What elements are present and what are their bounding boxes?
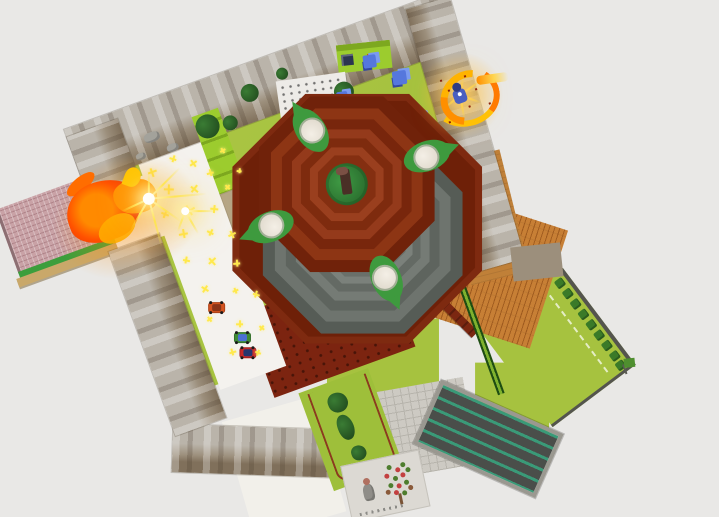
spark-particle: [235, 320, 242, 327]
tree-dot: [385, 489, 391, 495]
castle-wall-stub: [510, 242, 563, 281]
tree-dot: [405, 467, 411, 473]
tree-dot: [396, 483, 402, 489]
fence-bush: [577, 308, 590, 321]
game-viewport[interactable]: [0, 0, 719, 517]
enemy-unit[interactable]: [208, 301, 225, 314]
tree-dot: [400, 462, 406, 468]
tree-dot: [388, 483, 394, 489]
spark-particle: [232, 259, 240, 267]
fence-bush: [569, 298, 582, 311]
tree-dot: [386, 465, 392, 471]
fence-bush: [601, 339, 614, 352]
spark-particle: [182, 256, 190, 264]
blue-crystal-icon: [362, 54, 377, 69]
enemy-unit[interactable]: [234, 331, 251, 344]
card-tick-marks: [359, 504, 405, 516]
fence-bush: [585, 318, 598, 331]
tree-dot: [393, 475, 399, 481]
enemy-wheels: [235, 331, 238, 334]
tree-dot: [408, 485, 414, 491]
tree-dot: [402, 490, 408, 496]
spark-particle: [205, 168, 214, 177]
fence-bush: [562, 287, 575, 300]
spark-particle: [251, 290, 260, 299]
statue: [362, 483, 376, 502]
fence-bush: [554, 277, 567, 290]
navy-crate: [341, 54, 354, 66]
enemy-wheels: [209, 301, 212, 304]
tree-dot: [384, 473, 390, 479]
spark-particle: [236, 168, 241, 173]
spark-particle: [228, 347, 237, 356]
spark-particle: [210, 205, 219, 214]
tree-dot: [400, 472, 406, 478]
enemy-roof: [212, 304, 221, 311]
fence-bush: [593, 329, 606, 342]
enemy-roof: [238, 334, 247, 341]
blue-crystal-icon: [392, 70, 408, 86]
green-flag: [623, 358, 635, 368]
spark-ray: [185, 210, 215, 212]
enemy-roof: [243, 349, 252, 356]
enemy-wheels: [240, 346, 243, 349]
tree-dot: [395, 467, 401, 473]
